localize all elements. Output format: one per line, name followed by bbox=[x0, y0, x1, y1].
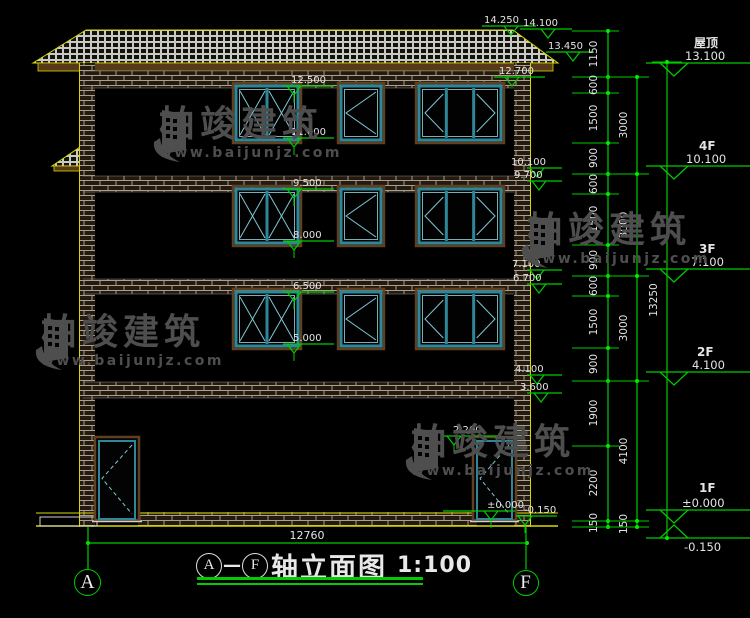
floor-level-triangle bbox=[660, 510, 688, 523]
title-underline-thin bbox=[197, 583, 423, 585]
floor-level-triangle bbox=[660, 63, 688, 76]
level-marker-value: 8.000 bbox=[293, 230, 322, 241]
level-marker-value: 9.500 bbox=[293, 178, 322, 189]
roof-level-marker-value: 14.250 bbox=[484, 15, 519, 26]
node-dot bbox=[665, 60, 669, 64]
level-marker-value: 11.000 bbox=[291, 127, 326, 138]
window-frame bbox=[419, 189, 501, 243]
overall-dim-value: 12760 bbox=[290, 529, 325, 542]
floor-name: 4F bbox=[699, 139, 716, 153]
level-marker-triangle bbox=[447, 436, 461, 445]
chain1-dim-value: 1500 bbox=[588, 206, 600, 233]
brick-band bbox=[83, 382, 514, 398]
chain1-dim-value: 900 bbox=[588, 354, 600, 374]
floor-elevation: ±0.000 bbox=[682, 496, 725, 510]
roof-level-marker-triangle bbox=[566, 52, 580, 61]
floor-elevation: 10.100 bbox=[686, 152, 726, 166]
node-dot bbox=[606, 141, 610, 145]
chain1-dim-value: 600 bbox=[588, 174, 600, 194]
node-dot bbox=[606, 294, 610, 298]
node-dot bbox=[635, 379, 639, 383]
window-frame bbox=[341, 86, 381, 140]
level-marker-value: 2.200 bbox=[453, 425, 482, 436]
edge-level-marker-value: 7.100 bbox=[512, 259, 541, 270]
axis-bubble-F: F bbox=[513, 570, 539, 596]
chain3-dim-value: 13250 bbox=[648, 283, 660, 316]
chain2-dim-value: 150 bbox=[618, 514, 630, 534]
edge-level-marker-value: 9.700 bbox=[514, 170, 543, 181]
edge-level-marker-triangle bbox=[532, 284, 546, 293]
window-frame bbox=[419, 292, 501, 346]
chain2-dim-value: 4100 bbox=[618, 438, 630, 465]
floor-elevation: -0.150 bbox=[684, 540, 721, 554]
cad-elevation-screen: 14.25014.10013.45012.70012.50011.0009.50… bbox=[0, 0, 750, 618]
edge-level-marker-value: 10.100 bbox=[511, 157, 546, 168]
node-dot bbox=[635, 75, 639, 79]
brick-pier-left bbox=[79, 63, 95, 527]
node-dot bbox=[606, 346, 610, 350]
edge-level-marker-value: 6.700 bbox=[513, 273, 542, 284]
chain1-dim-value: 1500 bbox=[588, 309, 600, 336]
window-frame bbox=[419, 86, 501, 140]
roof-level-marker-value: 13.450 bbox=[548, 41, 583, 52]
floor-level-triangle bbox=[660, 269, 688, 282]
node-dot bbox=[606, 91, 610, 95]
floor-level-triangle bbox=[660, 372, 688, 385]
axis-bubble-A: A bbox=[74, 569, 101, 596]
floor-name: 3F bbox=[699, 242, 716, 256]
level-marker-value: 6.500 bbox=[293, 281, 322, 292]
edge-level-marker-value: 4.100 bbox=[515, 364, 544, 375]
floor-level-triangle bbox=[660, 525, 688, 538]
node-dot bbox=[635, 519, 639, 523]
chain1-dim-value: 150 bbox=[588, 513, 600, 533]
roof-tiles bbox=[33, 30, 558, 63]
level-marker-value: ±0.000 bbox=[487, 500, 524, 511]
floor-level-triangle bbox=[660, 166, 688, 179]
node-dot bbox=[635, 525, 639, 529]
roof-fascia bbox=[38, 63, 553, 71]
chain1-dim-value: 1150 bbox=[588, 41, 600, 68]
floor-name: 1F bbox=[699, 481, 716, 495]
chain1-dim-value: 900 bbox=[588, 148, 600, 168]
chain1-dim-value: 900 bbox=[588, 250, 600, 270]
chain1-dim-value: 1900 bbox=[588, 400, 600, 427]
node-dot bbox=[606, 444, 610, 448]
edge-level-marker-triangle bbox=[534, 393, 548, 402]
chain1-dim-value: 600 bbox=[588, 75, 600, 95]
roof-level-marker-value: 12.700 bbox=[499, 66, 534, 77]
building-facade bbox=[33, 30, 558, 527]
title-axis-start-bubble: A bbox=[196, 553, 222, 579]
chain2-dim-value: 3000 bbox=[618, 315, 630, 342]
roof-level-marker-triangle bbox=[541, 29, 555, 38]
window-frame bbox=[341, 292, 381, 346]
chain2-dim-value: 3000 bbox=[618, 112, 630, 139]
title-axis-end-bubble: F bbox=[242, 553, 268, 579]
node-dot bbox=[665, 536, 669, 540]
chain1-dim-value: 2200 bbox=[588, 470, 600, 497]
level-marker-value: -0.150 bbox=[524, 505, 556, 516]
node-dot bbox=[606, 243, 610, 247]
chain1-dim-value: 1500 bbox=[588, 105, 600, 132]
window-frame bbox=[341, 189, 381, 243]
level-marker-value: 5.000 bbox=[293, 333, 322, 344]
node-dot bbox=[635, 274, 639, 278]
title-dash: — bbox=[223, 555, 241, 576]
floor-elevation: 13.100 bbox=[685, 49, 725, 63]
edge-level-marker-value: 3.600 bbox=[520, 382, 549, 393]
chain2-dim-value: 3000 bbox=[618, 212, 630, 239]
title-underline-thick bbox=[197, 577, 423, 580]
elevation-drawing: 14.25014.10013.45012.70012.50011.0009.50… bbox=[0, 0, 750, 618]
floor-elevation: 4.100 bbox=[692, 358, 725, 372]
edge-level-marker-triangle bbox=[532, 181, 546, 190]
floor-name: 屋顶 bbox=[694, 36, 718, 50]
level-marker-value: 12.500 bbox=[291, 75, 326, 86]
floor-elevation: 7.100 bbox=[691, 255, 724, 269]
brick-plinth bbox=[138, 512, 477, 526]
node-dot bbox=[606, 192, 610, 196]
floor-name: 2F bbox=[697, 345, 714, 359]
title-scale: 1:100 bbox=[397, 553, 472, 578]
roof-level-marker-value: 14.100 bbox=[523, 18, 558, 29]
node-dot bbox=[635, 172, 639, 176]
node-dot bbox=[606, 29, 610, 33]
chain1-dim-value: 600 bbox=[588, 276, 600, 296]
